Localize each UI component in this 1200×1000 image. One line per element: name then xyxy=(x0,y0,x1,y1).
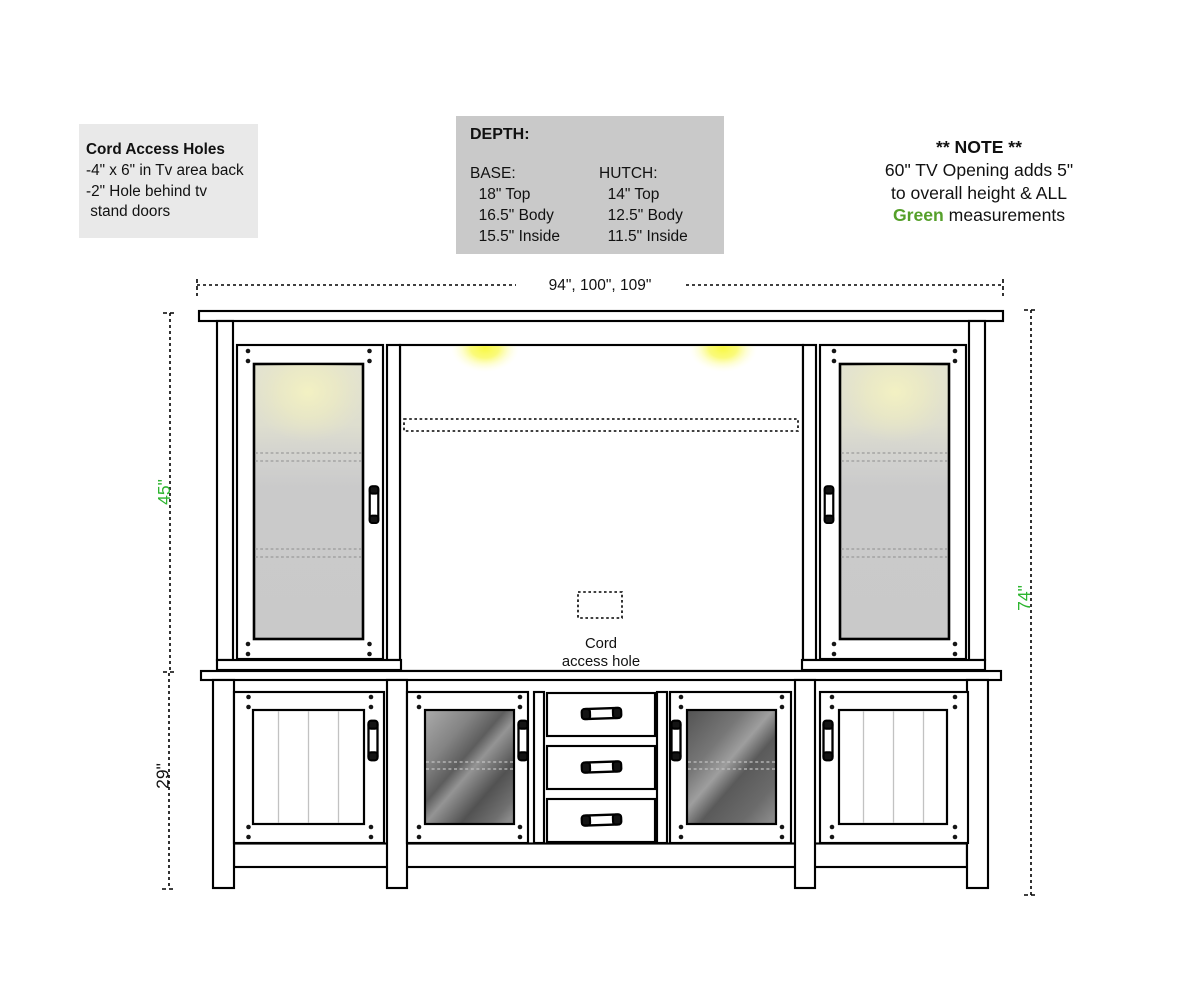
svg-text:94", 100", 109": 94", 100", 109" xyxy=(549,277,652,294)
svg-text:45": 45" xyxy=(154,479,174,505)
svg-text:29": 29" xyxy=(153,763,173,789)
svg-text:74": 74" xyxy=(1014,585,1034,611)
svg-text:Cord: Cord xyxy=(585,636,617,652)
svg-text:access hole: access hole xyxy=(562,654,640,670)
